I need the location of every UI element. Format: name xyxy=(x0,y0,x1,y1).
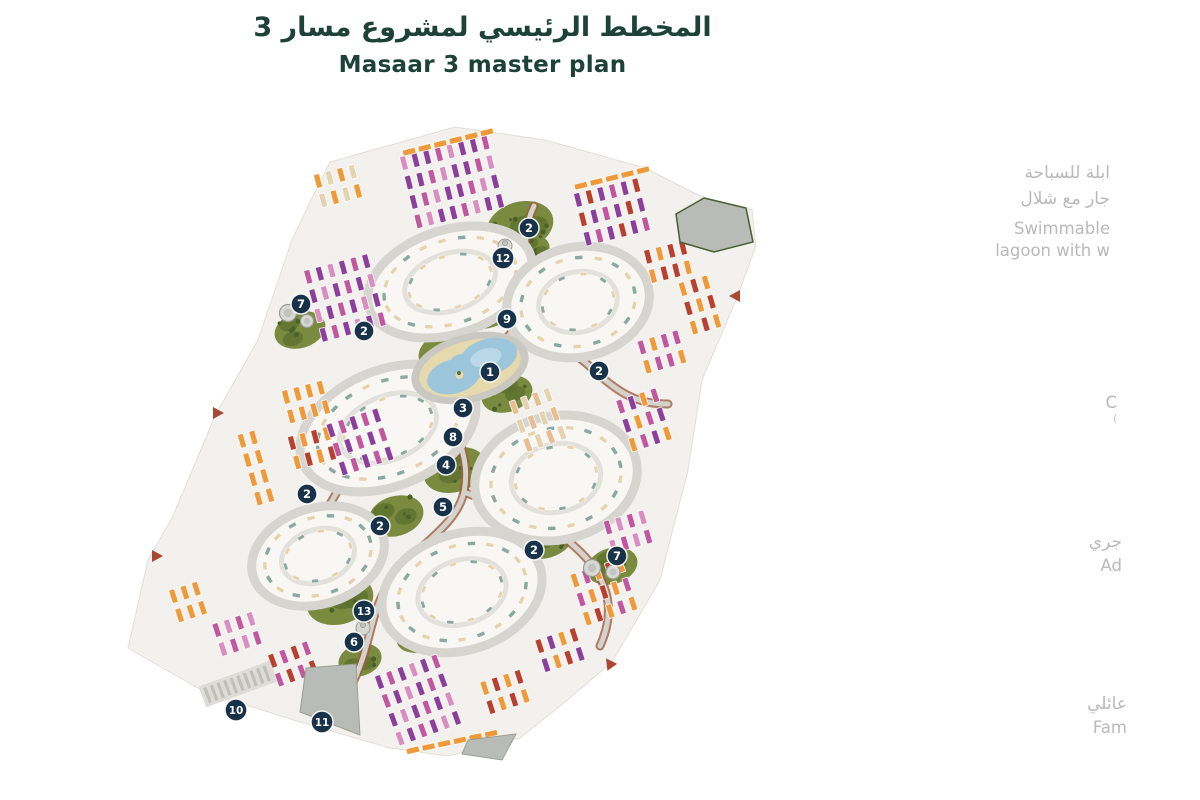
svg-text:2: 2 xyxy=(595,364,603,378)
map-marker-6[interactable]: 6 xyxy=(344,632,364,652)
svg-text:1: 1 xyxy=(486,365,494,379)
map-marker-7[interactable]: 7 xyxy=(291,294,311,314)
svg-text:3: 3 xyxy=(459,401,467,415)
svg-text:11: 11 xyxy=(315,717,330,729)
map-marker-2[interactable]: 2 xyxy=(524,540,544,560)
masterplan-map: 21279212384252271361011 xyxy=(0,0,1200,800)
svg-text:5: 5 xyxy=(439,500,447,514)
map-marker-2[interactable]: 2 xyxy=(519,218,539,238)
map-marker-3[interactable]: 3 xyxy=(453,398,473,418)
map-marker-5[interactable]: 5 xyxy=(433,497,453,517)
legend-text-english: Ad xyxy=(1089,555,1122,577)
map-marker-1[interactable]: 1 xyxy=(480,362,500,382)
svg-text:7: 7 xyxy=(297,297,305,311)
map-marker-2[interactable]: 2 xyxy=(354,321,374,341)
legend-text-english: C xyxy=(1105,392,1117,414)
legend-text-english: Swimmable xyxy=(995,218,1110,240)
map-marker-11[interactable]: 11 xyxy=(311,711,333,733)
svg-text:13: 13 xyxy=(357,606,372,618)
map-marker-2[interactable]: 2 xyxy=(297,484,317,504)
svg-text:10: 10 xyxy=(229,705,244,717)
legend-item-cropped: C ( xyxy=(1105,392,1117,426)
legend-text-fragment: ( xyxy=(1105,414,1117,426)
svg-text:12: 12 xyxy=(496,253,511,265)
legend-item-jogging: جري Ad xyxy=(1089,529,1122,578)
legend-text-arabic: جري xyxy=(1089,529,1122,555)
legend-text-english: lagoon with w xyxy=(995,240,1110,262)
map-marker-4[interactable]: 4 xyxy=(436,455,456,475)
legend-text-english: Fam xyxy=(1087,717,1127,739)
svg-text:8: 8 xyxy=(449,430,457,444)
svg-text:7: 7 xyxy=(613,549,621,563)
legend-item-swimmable-lagoon: ابلة للسباحة جار مع شلال Swimmable lagoo… xyxy=(995,160,1110,262)
legend-item-family: عائلي Fam xyxy=(1087,691,1127,740)
header: المخطط الرئيسي لمشروع مسار 3 Masaar 3 ma… xyxy=(0,10,965,78)
map-marker-7[interactable]: 7 xyxy=(607,546,627,566)
map-marker-10[interactable]: 10 xyxy=(225,699,247,721)
svg-text:2: 2 xyxy=(360,324,368,338)
map-marker-13[interactable]: 13 xyxy=(353,600,375,622)
svg-text:9: 9 xyxy=(503,312,511,326)
map-marker-2[interactable]: 2 xyxy=(370,516,390,536)
svg-text:4: 4 xyxy=(442,458,450,472)
page: المخطط الرئيسي لمشروع مسار 3 Masaar 3 ma… xyxy=(0,0,1200,800)
svg-text:2: 2 xyxy=(525,221,533,235)
map-marker-2[interactable]: 2 xyxy=(589,361,609,381)
page-title-arabic: المخطط الرئيسي لمشروع مسار 3 xyxy=(0,10,965,46)
map-marker-9[interactable]: 9 xyxy=(497,309,517,329)
legend-text-arabic: ابلة للسباحة xyxy=(995,160,1110,186)
legend-text-arabic: عائلي xyxy=(1087,691,1127,717)
svg-text:2: 2 xyxy=(376,519,384,533)
svg-text:2: 2 xyxy=(303,487,311,501)
map-marker-8[interactable]: 8 xyxy=(443,427,463,447)
svg-text:2: 2 xyxy=(530,543,538,557)
page-title-english: Masaar 3 master plan xyxy=(0,52,965,78)
svg-text:6: 6 xyxy=(350,635,358,649)
map-marker-12[interactable]: 12 xyxy=(492,247,514,269)
legend-text-arabic: جار مع شلال xyxy=(995,186,1110,212)
